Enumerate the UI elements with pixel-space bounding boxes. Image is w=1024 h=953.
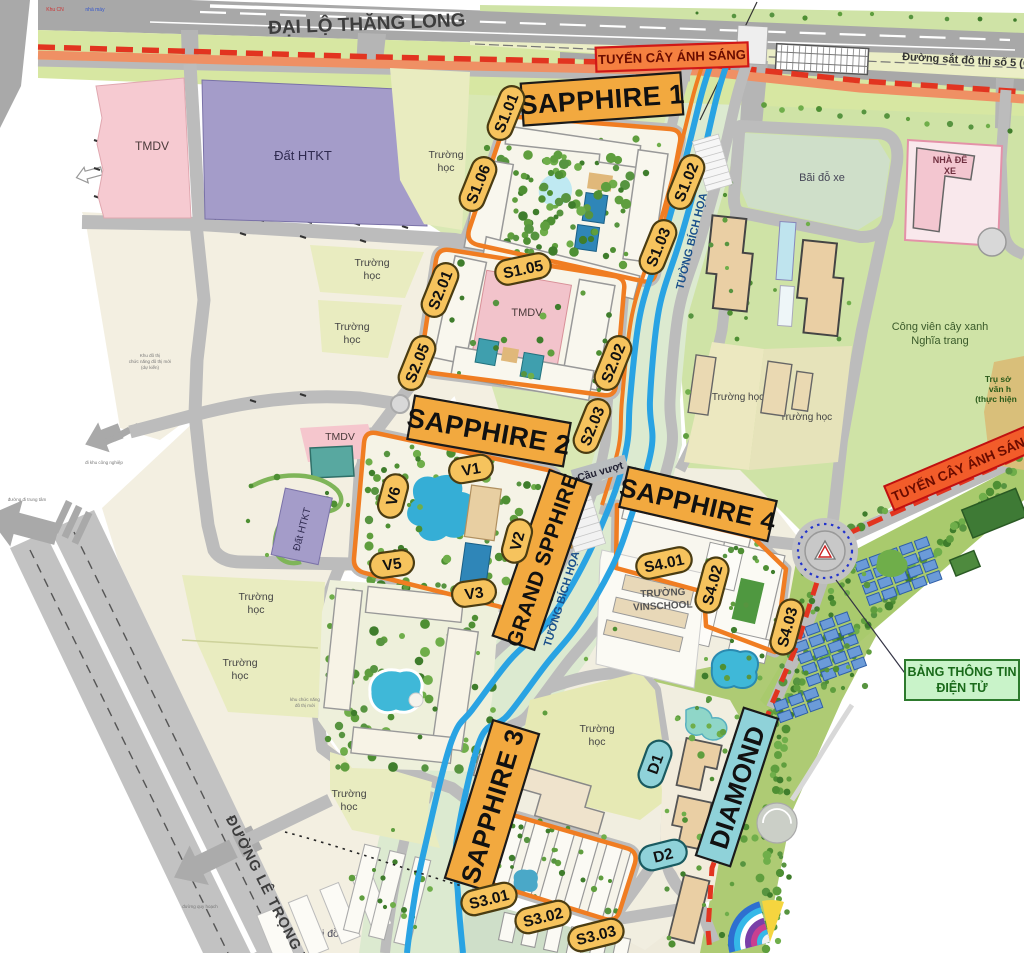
svg-text:đường đi trung tâm: đường đi trung tâm [8,497,47,502]
svg-text:khu chức năng: khu chức năng [290,697,320,702]
svg-text:Trường: Trường [238,591,273,603]
svg-text:Đất HTKT: Đất HTKT [274,148,332,163]
svg-text:học: học [344,334,361,346]
svg-text:Trường: Trường [334,321,369,333]
svg-text:NHÀ ĐỂ: NHÀ ĐỂ [933,154,968,165]
svg-text:đi khu công nghiệp: đi khu công nghiệp [85,460,123,465]
svg-text:TMDV: TMDV [511,307,543,319]
svg-text:học: học [232,670,249,682]
svg-text:TMDV: TMDV [135,139,169,153]
svg-text:Trụ sở: Trụ sở [985,374,1012,384]
svg-text:văn h: văn h [989,384,1011,394]
svg-text:học: học [341,801,358,813]
svg-text:học: học [364,270,381,282]
svg-text:(thực hiện: (thực hiện [975,394,1017,404]
svg-text:học: học [589,736,606,748]
svg-text:Công viên cây xanh: Công viên cây xanh [892,321,989,333]
svg-text:XE: XE [944,166,956,176]
svg-text:đô thị mới: đô thị mới [295,703,315,708]
svg-text:Bãi đỗ xe: Bãi đỗ xe [799,171,845,184]
svg-text:TMDV: TMDV [325,431,355,443]
svg-text:học: học [248,604,265,616]
svg-text:ĐIỆN TỬ: ĐIỆN TỬ [936,680,988,695]
svg-text:học: học [438,162,455,174]
svg-text:chức năng đô thị mới: chức năng đô thị mới [129,359,171,364]
svg-text:đường quy hoạch: đường quy hoạch [182,904,218,909]
svg-text:Trường học: Trường học [712,392,764,403]
svg-text:Trường: Trường [579,723,614,735]
svg-text:Khu CN: Khu CN [46,7,64,13]
svg-text:Trường: Trường [331,788,366,800]
svg-text:Khu đô thị: Khu đô thị [140,353,160,358]
svg-text:Trường: Trường [428,149,463,161]
svg-text:BẢNG THÔNG TIN: BẢNG THÔNG TIN [907,664,1016,679]
svg-text:Trường học: Trường học [780,412,832,423]
svg-text:Trường: Trường [354,257,389,269]
svg-text:V5: V5 [382,555,404,575]
svg-text:nhà máy: nhà máy [85,7,105,13]
svg-text:(dự kiến): (dự kiến) [141,365,160,370]
svg-text:V1: V1 [460,460,482,480]
svg-text:V3: V3 [464,584,486,604]
svg-text:Trường: Trường [222,657,257,669]
svg-text:Nghĩa trang: Nghĩa trang [911,335,968,347]
